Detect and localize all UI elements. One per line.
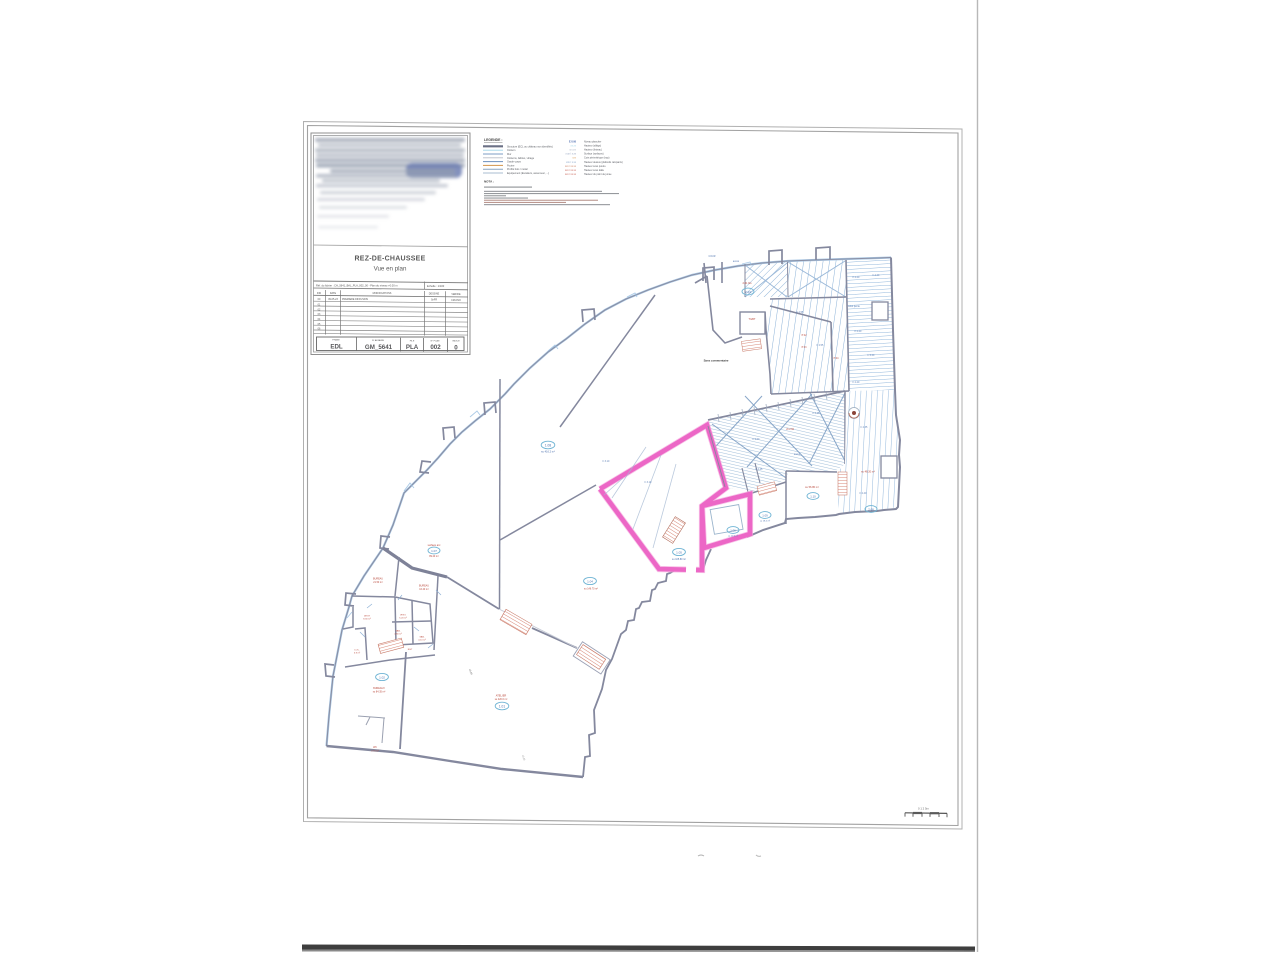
svg-text:su 18.2 m²: su 18.2 m²	[760, 520, 771, 523]
svg-text:h 2.35: h 2.35	[861, 426, 868, 429]
svg-text:2.70 m²: 2.70 m²	[371, 749, 379, 752]
svg-text:LOC.: LOC.	[354, 650, 359, 652]
svg-text:Surface (surfaces): Surface (surfaces)	[584, 153, 604, 156]
svg-text:0 1 2 5m: 0 1 2 5m	[918, 807, 930, 811]
svg-text:trame: trame	[794, 453, 801, 456]
svg-text:5.20 m²: 5.20 m²	[399, 616, 407, 619]
svg-text:Mur: Mur	[507, 153, 511, 156]
svg-text:Echelle : 1/100: Echelle : 1/100	[427, 284, 445, 288]
svg-text:COUR: COUR	[708, 255, 715, 258]
svg-text:Garde-corps: Garde-corps	[507, 161, 522, 164]
svg-text:1.07: 1.07	[431, 549, 437, 553]
svg-text:DEGT: DEGT	[364, 616, 371, 618]
svg-text:VERIFIE: VERIFIE	[451, 293, 461, 296]
svg-text:CM-DSO: CM-DSO	[451, 299, 461, 302]
svg-text:21.50 m²: 21.50 m²	[373, 581, 383, 584]
svg-text:su 146.70 m²: su 146.70 m²	[584, 588, 598, 591]
svg-text:h 2.20: h 2.20	[853, 381, 860, 384]
svg-text:1.10: 1.10	[810, 494, 816, 498]
svg-text:Hauteur dessus (plafonds ra: Hauteur dessus (plafonds rampants)	[584, 161, 623, 164]
svg-text:su 84.35 m²: su 84.35 m²	[373, 691, 386, 694]
svg-text:TGBT: TGBT	[749, 317, 756, 321]
svg-text:surface arc: surface arc	[428, 543, 442, 547]
svg-text:h 2.55: h 2.55	[817, 344, 824, 347]
svg-text:P 03: P 03	[802, 346, 808, 349]
svg-text:1.01: 1.01	[499, 704, 505, 708]
svg-text:Hauteur (linteau): Hauteur (linteau)	[584, 149, 602, 152]
svg-text:Hauteur sous dalle: Hauteur sous dalle	[584, 169, 605, 172]
svg-text:Réf. du fichier : CH_5641_B: Réf. du fichier : CH_5641_BAL_PLA_002_00…	[316, 284, 398, 288]
svg-text:x.xx / x.xx: x.xx / x.xx	[566, 153, 577, 156]
svg-text:RGT: RGT	[408, 649, 413, 651]
svg-text:1.06: 1.06	[730, 528, 736, 532]
svg-text:0: 0	[454, 344, 458, 351]
svg-text:1.02: 1.02	[379, 675, 385, 679]
svg-text:xxx / xx.xx: xxx / xx.xx	[565, 165, 577, 168]
svg-text:DESSINE: DESSINE	[429, 293, 440, 296]
svg-text:Hauteur du point de jonée: Hauteur du point de jonée	[584, 173, 612, 176]
svg-text:PHASE: PHASE	[332, 339, 340, 342]
svg-text:Cloisons, faibles, vitrage: Cloisons, faibles, vitrage	[507, 157, 535, 160]
svg-text:Profilé bois / métal: Profilé bois / métal	[507, 168, 528, 171]
svg-text:xxx / xx.xx: xxx / xx.xx	[565, 173, 577, 176]
svg-text:REZ-DE-CHAUSSEE: REZ-DE-CHAUSSEE	[354, 256, 425, 263]
svg-text:16.40 m²: 16.40 m²	[419, 588, 429, 591]
svg-text:h 3.10: h 3.10	[603, 460, 610, 463]
svg-text:su 105.80 m²: su 105.80 m²	[672, 558, 686, 561]
svg-text:N° PLAN: N° PLAN	[431, 340, 440, 343]
svg-text:89.20 m²: 89.20 m²	[429, 555, 439, 558]
svg-text:Niveau plancher: Niveau plancher	[584, 140, 601, 143]
svg-text:h 2.55: h 2.55	[797, 311, 804, 314]
svg-text:Cote périmétrique (trop): Cote périmétrique (trop)	[584, 157, 610, 160]
svg-text:EDL: EDL	[330, 343, 343, 350]
svg-text:GM_5641: GM_5641	[365, 344, 393, 351]
svg-text:P 04: P 04	[834, 357, 840, 360]
svg-text:09-05-23: 09-05-23	[328, 298, 338, 301]
svg-text:2.08: 2.08	[868, 507, 874, 511]
svg-text:Sans commentaire: Sans commentaire	[704, 359, 729, 363]
svg-text:su 56.80 m²: su 56.80 m²	[805, 485, 819, 489]
svg-text:SeFR: SeFR	[431, 299, 437, 302]
svg-text:4.10 m²: 4.10 m²	[418, 638, 426, 641]
svg-text:WC: WC	[373, 747, 377, 749]
svg-text:Vue en plan: Vue en plan	[374, 266, 407, 273]
svg-text:h 2.40: h 2.40	[860, 492, 867, 495]
svg-text:xxx / xx.xx: xxx / xx.xx	[565, 169, 577, 172]
svg-text:h 2.20: h 2.20	[868, 354, 875, 357]
svg-text:h 2.20: h 2.20	[855, 330, 862, 333]
svg-text:h 2.35: h 2.35	[813, 412, 820, 415]
svg-text:xx.xxx: xx.xxx	[569, 149, 576, 152]
svg-text:su 48.20 m²: su 48.20 m²	[861, 470, 875, 474]
svg-text:h 2.60: h 2.60	[753, 438, 760, 441]
svg-text:3.9 m²: 3.9 m²	[354, 651, 360, 654]
svg-text:Equipement (Escaliers, ascens: Equipement (Escaliers, ascenseur, ...)	[507, 172, 549, 175]
svg-text:su 416.2 m²: su 416.2 m²	[541, 450, 555, 454]
svg-text:1.04: 1.04	[587, 579, 593, 583]
svg-text:4.80 m²: 4.80 m²	[394, 632, 402, 635]
svg-text:Hauteur (allège): Hauteur (allège)	[584, 145, 601, 148]
svg-text:SAN.: SAN.	[419, 636, 424, 639]
svg-text:PLA: PLA	[406, 344, 419, 351]
svg-text:Poutre: Poutre	[507, 164, 515, 167]
svg-text:SAN.: SAN.	[395, 630, 400, 633]
svg-text:P 02: P 02	[802, 334, 808, 337]
svg-text:1.08: 1.08	[545, 443, 551, 447]
svg-text:MODIFICATIONS: MODIFICATIONS	[373, 292, 392, 295]
svg-text:h 2.20: h 2.20	[873, 274, 880, 277]
svg-text:h 3.10: h 3.10	[645, 481, 652, 484]
svg-text:ch 2.60: ch 2.60	[786, 428, 795, 431]
svg-text:su 12.6 m²: su 12.6 m²	[728, 535, 739, 538]
svg-text:xx.xx: xx.xx	[571, 145, 577, 148]
svg-text:8.30 m²: 8.30 m²	[363, 617, 371, 620]
svg-text:Cloison: Cloison	[507, 149, 516, 152]
svg-text:FILE: FILE	[410, 340, 415, 342]
svg-text:PREMIERE DIFFUSION: PREMIERE DIFFUSION	[342, 298, 368, 301]
svg-text:IND: IND	[317, 292, 321, 295]
svg-text:2.01 bis: 2.01 bis	[742, 281, 752, 285]
svg-text:xxx / x.xx: xxx / x.xx	[566, 161, 577, 164]
svg-text:LEGENDE :: LEGENDE :	[484, 138, 502, 142]
svg-text:N° AFFAIRE: N° AFFAIRE	[372, 339, 385, 342]
svg-text:002: 002	[430, 344, 441, 351]
svg-text:E.V.06: E.V.06	[569, 140, 577, 143]
svg-text:sous pente: sous pente	[848, 305, 860, 308]
svg-text:accès: accès	[733, 260, 740, 263]
svg-text:Hauteur sous poutre: Hauteur sous poutre	[584, 165, 606, 168]
svg-text:BUREAUX: BUREAUX	[373, 687, 385, 690]
svg-text:h 2.45: h 2.45	[756, 468, 763, 471]
svg-text:Structure (ECL ou château non: Structure (ECL ou château non identifiés…	[507, 145, 553, 148]
svg-text:h 2.20: h 2.20	[853, 276, 860, 279]
svg-text:INDICE: INDICE	[452, 341, 460, 343]
svg-text:NOTA :: NOTA :	[484, 180, 494, 184]
svg-text:DATE: DATE	[330, 292, 337, 295]
svg-text:su 420.6 m²: su 420.6 m²	[495, 698, 508, 701]
svg-text:VEST.: VEST.	[400, 615, 406, 617]
svg-text:2.01: 2.01	[745, 290, 751, 294]
svg-text:1.05: 1.05	[676, 550, 682, 554]
svg-text:1.09: 1.09	[762, 513, 768, 517]
